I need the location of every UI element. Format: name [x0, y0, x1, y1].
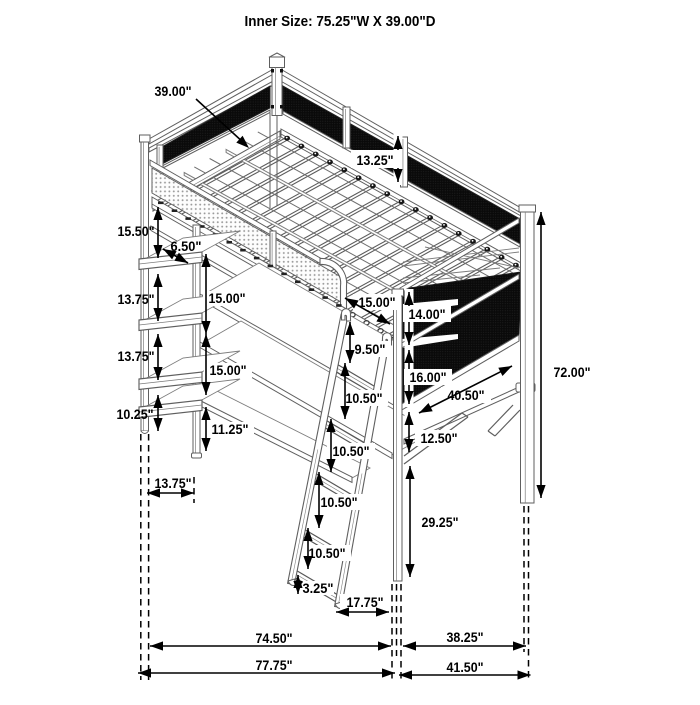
- svg-text:10.50": 10.50": [321, 495, 358, 510]
- svg-text:15.00": 15.00": [359, 295, 396, 310]
- svg-text:13.75": 13.75": [118, 349, 155, 364]
- svg-text:74.50": 74.50": [256, 631, 293, 646]
- svg-text:15.00": 15.00": [209, 291, 246, 306]
- svg-text:16.00": 16.00": [410, 370, 447, 385]
- svg-text:13.25": 13.25": [357, 153, 394, 168]
- svg-text:14.00": 14.00": [409, 307, 446, 322]
- svg-text:15.00": 15.00": [210, 363, 247, 378]
- svg-text:77.75": 77.75": [256, 658, 293, 673]
- svg-text:13.75": 13.75": [118, 292, 155, 307]
- svg-text:10.50": 10.50": [333, 444, 370, 459]
- svg-text:10.25": 10.25": [117, 407, 154, 422]
- svg-text:9.50": 9.50": [355, 342, 386, 357]
- svg-text:41.50": 41.50": [447, 660, 484, 675]
- svg-text:29.25": 29.25": [422, 515, 459, 530]
- svg-text:72.00": 72.00": [554, 365, 591, 380]
- svg-text:13.75": 13.75": [155, 476, 192, 491]
- svg-text:3.25": 3.25": [303, 581, 334, 596]
- svg-text:39.00": 39.00": [155, 84, 192, 99]
- svg-text:11.25": 11.25": [212, 422, 249, 437]
- svg-text:12.50": 12.50": [421, 431, 458, 446]
- svg-text:10.50": 10.50": [346, 391, 383, 406]
- svg-text:10.50": 10.50": [309, 546, 346, 561]
- svg-text:15.50": 15.50": [118, 224, 155, 239]
- svg-text:Inner Size: 75.25"W X 39.00"D: Inner Size: 75.25"W X 39.00"D: [245, 14, 436, 30]
- svg-text:17.75": 17.75": [347, 595, 384, 610]
- svg-text:38.25": 38.25": [447, 630, 484, 645]
